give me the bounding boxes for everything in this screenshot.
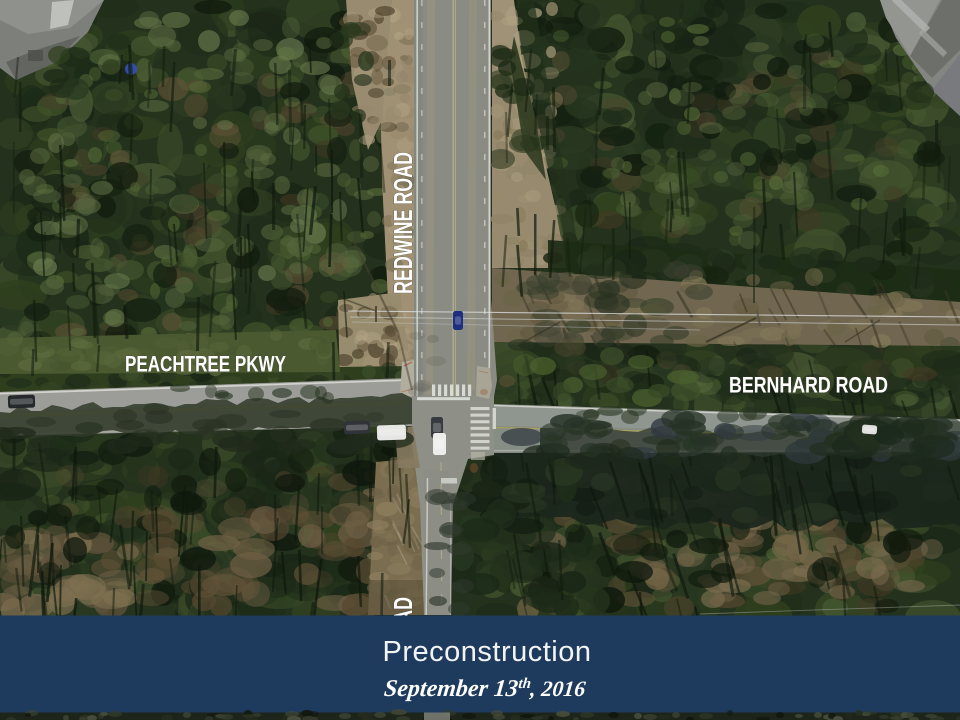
svg-text:September 13th, 2016: September 13th, 2016 bbox=[383, 676, 588, 702]
svg-text:BERNHARD ROAD: BERNHARD ROAD bbox=[729, 373, 888, 398]
svg-text:PEACHTREE PKWY: PEACHTREE PKWY bbox=[125, 352, 286, 377]
svg-text:Preconstruction: Preconstruction bbox=[383, 636, 592, 668]
svg-text:REDWINE ROAD: REDWINE ROAD bbox=[388, 152, 418, 294]
